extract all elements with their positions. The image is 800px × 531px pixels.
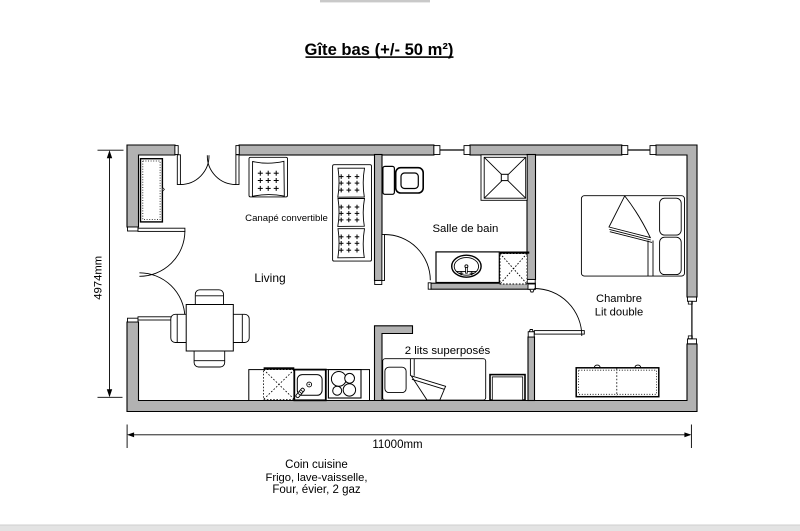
svg-text:2 lits superposés: 2 lits superposés: [405, 345, 491, 357]
svg-text:Canapé convertible: Canapé convertible: [245, 213, 328, 224]
svg-text:11000mm: 11000mm: [372, 439, 422, 451]
svg-text:Salle de bain: Salle de bain: [432, 223, 498, 235]
svg-text:Four, évier, 2 gaz: Four, évier, 2 gaz: [272, 484, 360, 496]
svg-text:Coin cuisine: Coin cuisine: [285, 459, 348, 471]
svg-text:Frigo, lave-vaisselle,: Frigo, lave-vaisselle,: [266, 472, 368, 484]
svg-text:Chambre: Chambre: [596, 293, 642, 305]
svg-text:Lit double: Lit double: [595, 307, 644, 319]
svg-text:Living: Living: [254, 271, 285, 285]
svg-text:Gîte bas (+/- 50 m²): Gîte bas (+/- 50 m²): [305, 40, 454, 59]
svg-text:4974mm: 4974mm: [92, 256, 104, 300]
